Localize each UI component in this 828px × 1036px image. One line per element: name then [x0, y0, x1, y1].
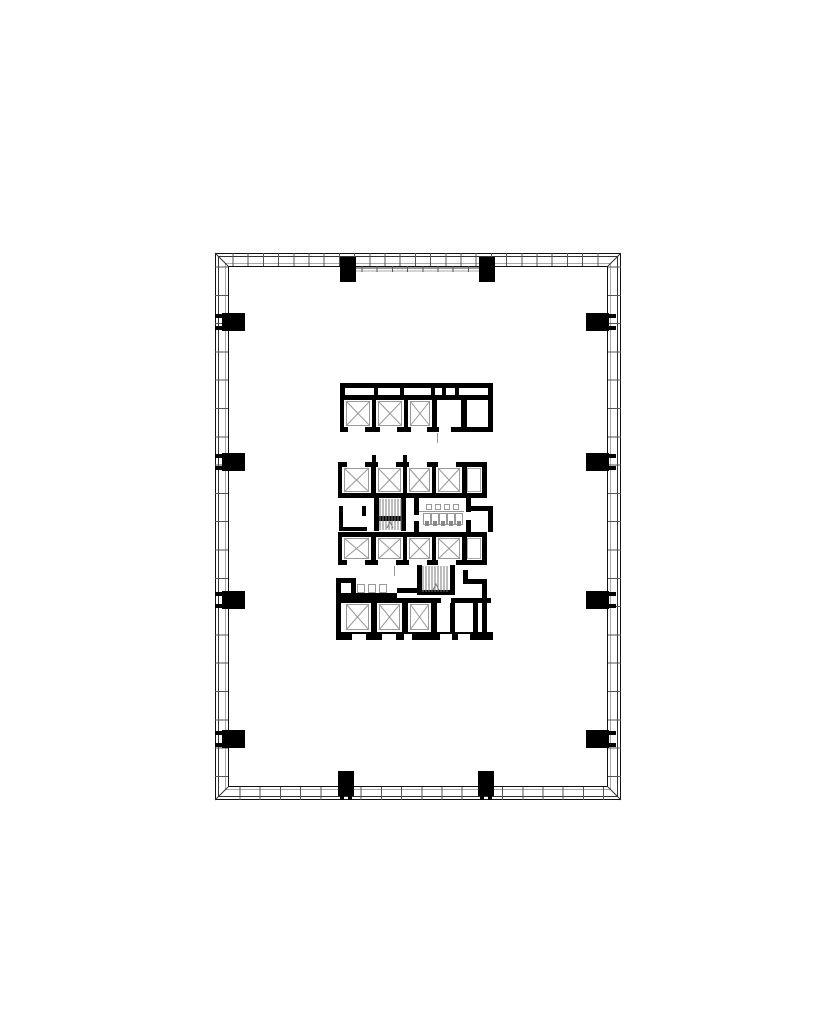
- corner-miter: [215, 787, 228, 800]
- wc-fixture: [436, 505, 441, 510]
- floor-plan-page: [0, 0, 828, 1036]
- wc-fixture: [369, 585, 376, 593]
- column-tab: [607, 743, 616, 747]
- core-wall: [473, 603, 478, 632]
- perimeter-column: [586, 730, 609, 748]
- perimeter-column: [586, 313, 609, 331]
- perimeter-column: [338, 771, 354, 796]
- door-opening: [380, 427, 397, 432]
- core-wall: [371, 603, 377, 632]
- column-tab: [488, 796, 492, 800]
- column-tab: [607, 731, 616, 735]
- core-wall: [470, 506, 493, 511]
- core-wall: [450, 603, 455, 632]
- door-opening: [347, 560, 365, 565]
- column-tab: [607, 592, 616, 596]
- column-tab: [340, 796, 344, 800]
- column-tab: [215, 326, 224, 330]
- detail-line: [437, 433, 438, 443]
- door-opening: [348, 427, 365, 432]
- column-tab: [607, 314, 616, 318]
- door-opening: [378, 560, 396, 565]
- door-opening: [404, 634, 412, 640]
- perimeter-column: [479, 257, 495, 282]
- service-room-outline: [468, 469, 481, 492]
- core-wall: [397, 588, 420, 593]
- door-opening: [438, 560, 456, 565]
- core-wall: [431, 603, 437, 632]
- core-wall: [336, 598, 491, 603]
- wc-fixture: [454, 505, 459, 510]
- wc-fixture-mark: [433, 521, 437, 526]
- core-wall: [414, 498, 419, 515]
- core-wall: [466, 520, 471, 532]
- corner-miter: [608, 787, 621, 800]
- column-tab: [607, 466, 616, 470]
- wc-fixture: [380, 585, 387, 593]
- core-wall: [374, 388, 378, 395]
- door-opening: [439, 427, 451, 432]
- door-opening: [458, 634, 470, 640]
- door-opening: [440, 634, 452, 640]
- core-wall: [431, 388, 435, 395]
- core-wall: [461, 400, 467, 427]
- column-tab: [607, 604, 616, 608]
- core-wall: [488, 383, 493, 432]
- door-opening: [378, 462, 396, 467]
- wc-fixture-mark: [441, 521, 445, 526]
- column-tab: [215, 604, 224, 608]
- column-tab: [215, 592, 224, 596]
- door-opening: [411, 427, 427, 432]
- core-wall: [450, 565, 455, 593]
- door-opening: [347, 462, 365, 467]
- column-tab: [348, 796, 352, 800]
- perimeter-column: [586, 453, 609, 471]
- core-wall: [338, 493, 487, 498]
- core-wall: [374, 498, 379, 531]
- column-tab: [215, 731, 224, 735]
- wc-fixture: [427, 505, 432, 510]
- column-tab: [215, 314, 224, 318]
- core-wall: [341, 593, 397, 598]
- core-wall: [455, 388, 459, 395]
- door-opening: [441, 598, 451, 603]
- service-room-outline: [468, 539, 481, 559]
- column-tab: [215, 466, 224, 470]
- perimeter-column: [222, 591, 245, 609]
- core-wall: [482, 579, 487, 640]
- core-wall: [488, 511, 493, 532]
- perimeter-column: [222, 313, 245, 331]
- perimeter-column: [222, 453, 245, 471]
- wc-fixture: [358, 585, 365, 593]
- perimeter-column: [222, 730, 245, 748]
- perimeter-column: [340, 257, 356, 282]
- core-wall: [403, 455, 407, 462]
- door-opening: [409, 560, 427, 565]
- core-wall: [340, 383, 493, 388]
- core-wall: [442, 388, 446, 395]
- door-opening: [352, 634, 366, 640]
- core-wall: [400, 388, 404, 395]
- core-wall: [372, 455, 376, 462]
- detail-line: [419, 511, 464, 512]
- core-wall: [345, 395, 488, 400]
- door-opening: [382, 634, 396, 640]
- corner-miter: [608, 253, 621, 266]
- wc-fixture-mark: [425, 521, 429, 526]
- core-wall: [336, 578, 341, 640]
- core-wall: [362, 506, 366, 516]
- core-wall: [414, 521, 419, 532]
- core-wall: [338, 532, 487, 537]
- core-wall: [339, 527, 367, 531]
- door-opening: [438, 462, 456, 467]
- column-tab: [607, 326, 616, 330]
- wc-fixture-mark: [449, 521, 453, 526]
- perimeter-column: [478, 771, 494, 796]
- column-tab: [480, 796, 484, 800]
- corner-miter: [215, 253, 228, 266]
- column-tab: [215, 743, 224, 747]
- core-wall: [401, 498, 406, 531]
- perimeter-column: [586, 591, 609, 609]
- wc-fixture-mark: [457, 521, 461, 526]
- detail-line: [394, 566, 395, 576]
- core-wall: [482, 462, 487, 498]
- core-wall: [402, 603, 408, 632]
- door-opening: [409, 462, 427, 467]
- wc-fixture: [445, 505, 450, 510]
- column-tab: [607, 454, 616, 458]
- floor-plan-drawing: [0, 0, 828, 1036]
- column-tab: [215, 454, 224, 458]
